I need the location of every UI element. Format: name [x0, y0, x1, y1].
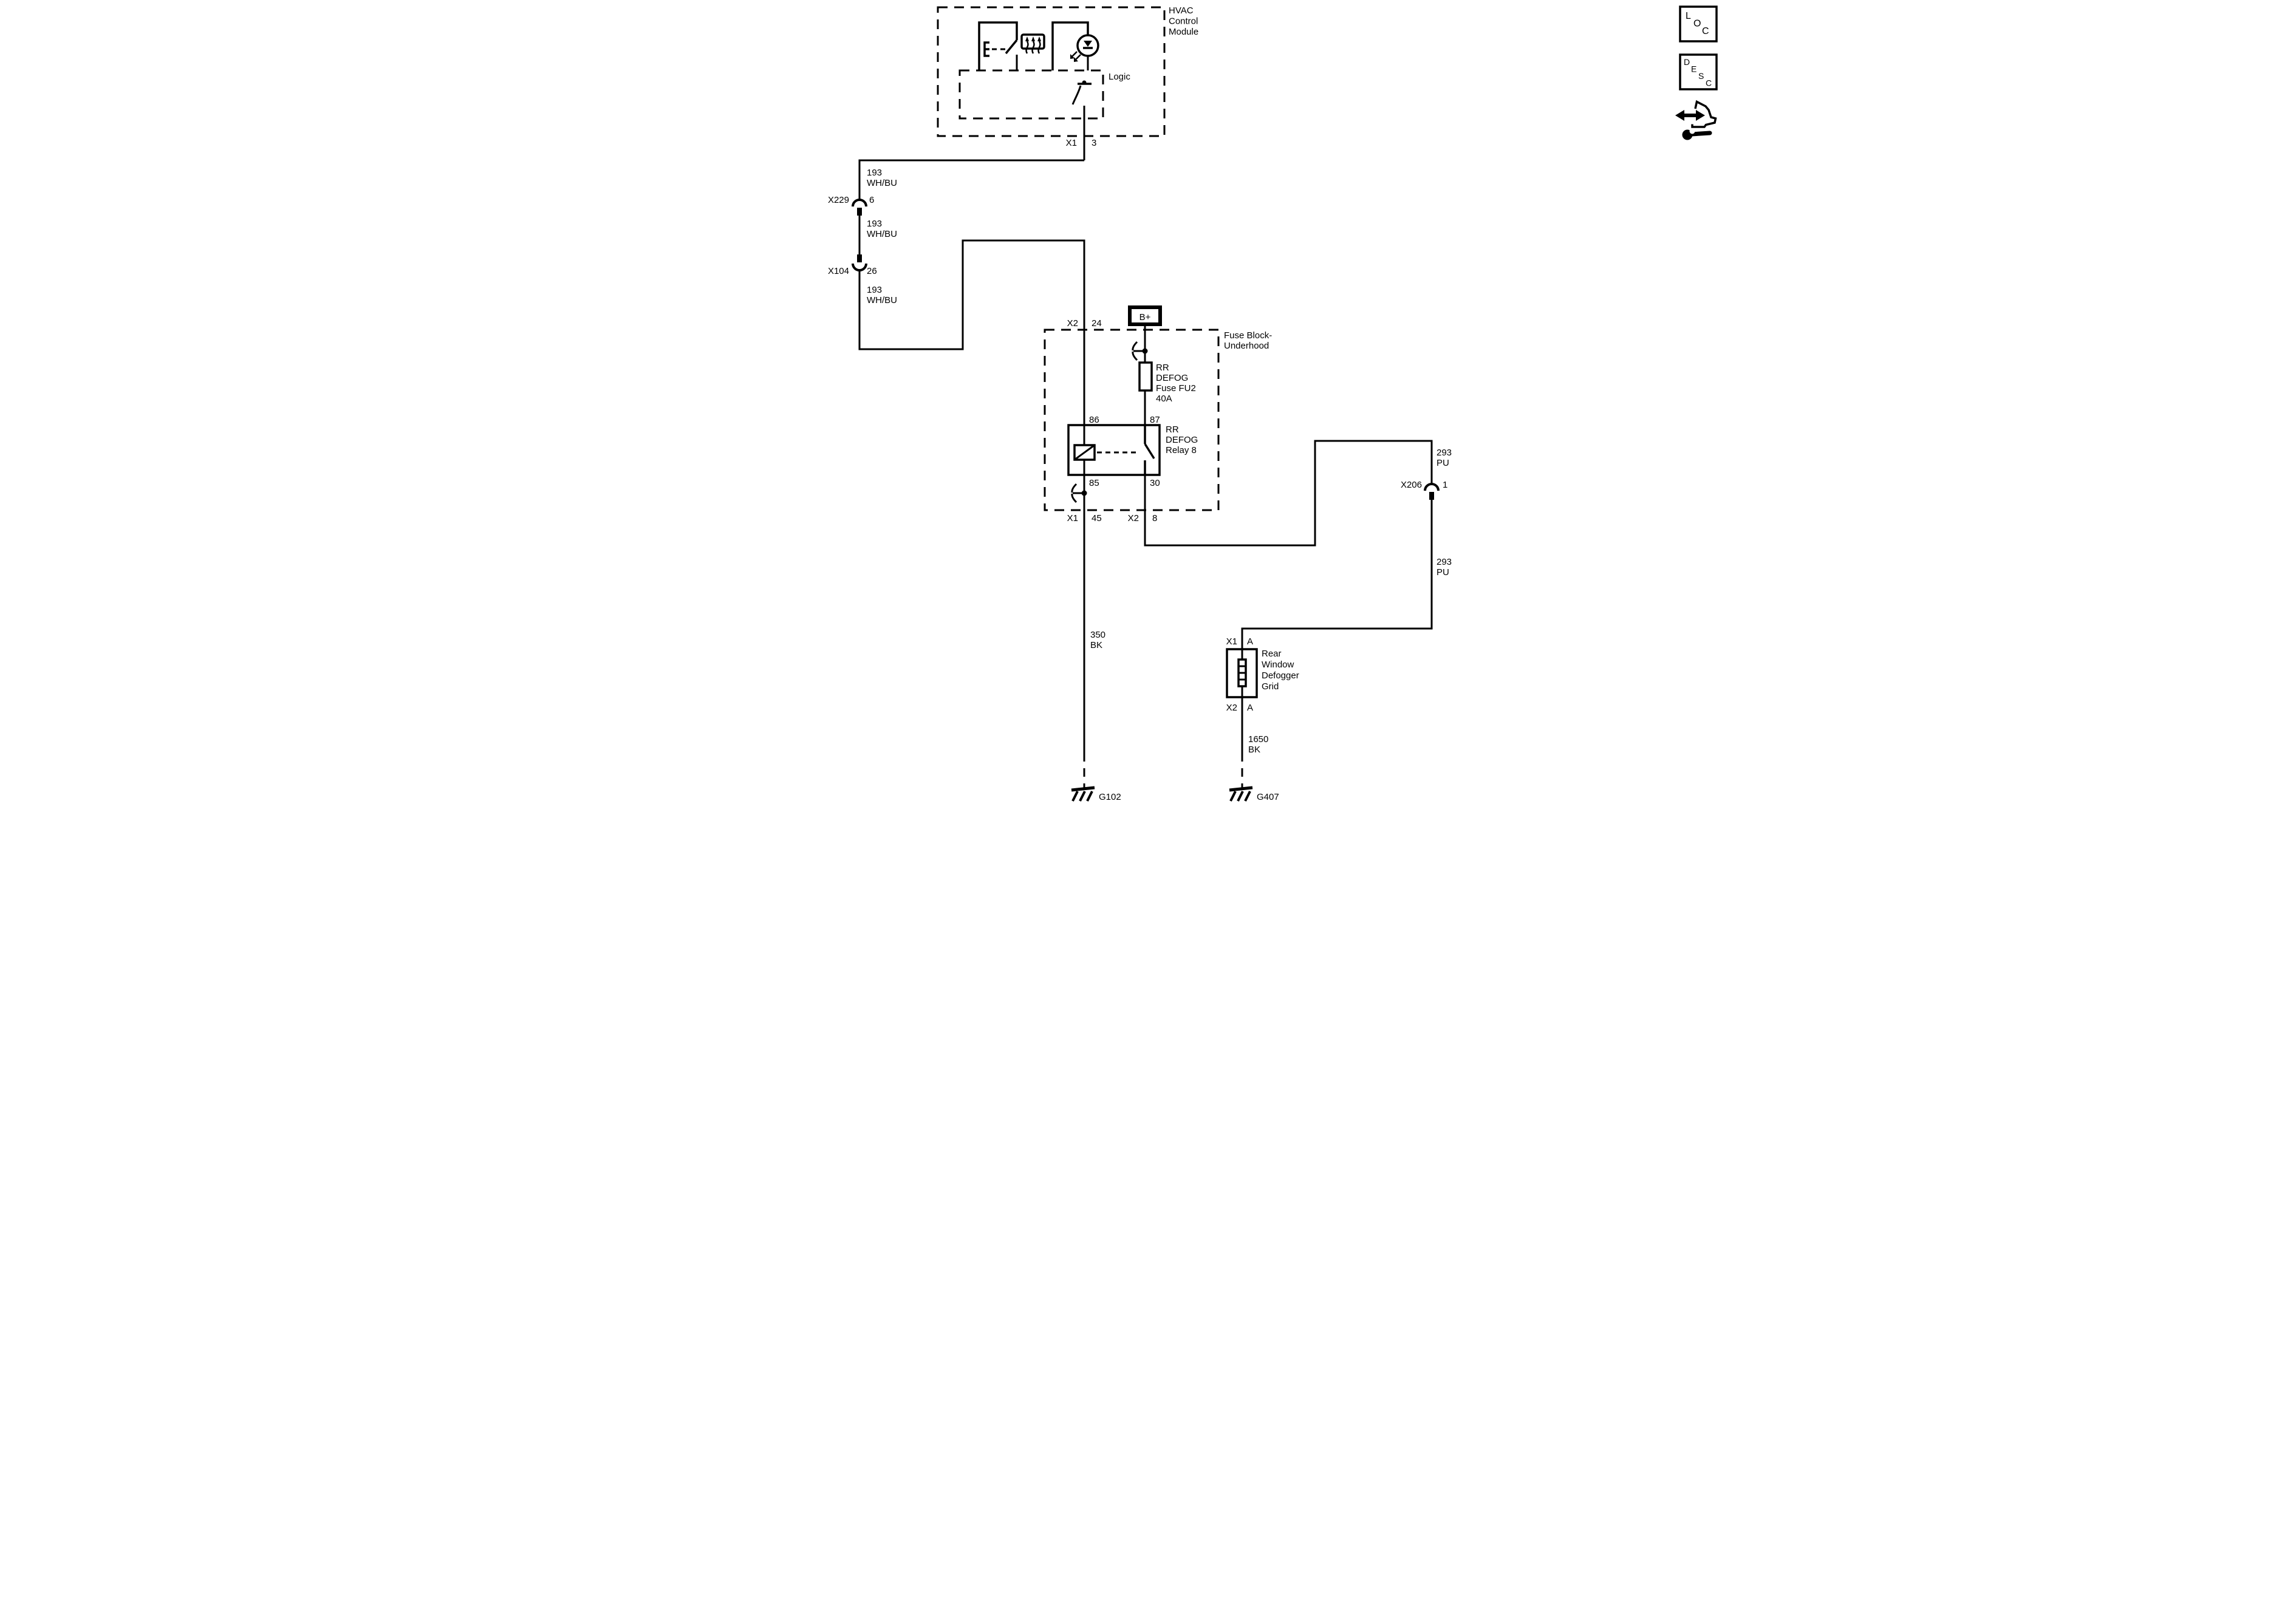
- svg-text:8: 8: [1152, 513, 1157, 523]
- wire-label-1650: 1650 BK: [1248, 734, 1268, 755]
- desc-letter: D: [1684, 57, 1690, 67]
- fuse-fu2-icon: [1139, 363, 1152, 390]
- hvac-control-module: HVAC Control Module: [938, 5, 1198, 160]
- svg-text:X2: X2: [1226, 703, 1237, 713]
- wire-label-193-3: 193 WH/BU: [867, 285, 897, 305]
- svg-text:WH/BU: WH/BU: [867, 295, 897, 305]
- svg-text:WH/BU: WH/BU: [867, 229, 897, 239]
- svg-text:Fuse FU2: Fuse FU2: [1156, 383, 1196, 394]
- connector-plug-icon: [857, 208, 862, 216]
- wire-label-193-1: 193 WH/BU: [867, 168, 897, 188]
- pin-label: X1: [1066, 138, 1077, 148]
- ground-symbol-icon: [1071, 788, 1095, 801]
- svg-text:293: 293: [1437, 448, 1452, 458]
- relay-terminal-label: 30: [1150, 478, 1160, 488]
- svg-text:193: 193: [867, 219, 882, 229]
- svg-text:DEFOG: DEFOG: [1166, 435, 1198, 445]
- defogger-grid-element-icon: [1239, 660, 1246, 686]
- loc-letter: O: [1693, 19, 1701, 29]
- svg-text:350: 350: [1090, 630, 1105, 640]
- svg-text:Window: Window: [1262, 660, 1294, 670]
- ground-symbol-icon: [1229, 788, 1252, 801]
- relay-label: RR DEFOG Relay 8: [1166, 424, 1198, 455]
- logic-box: Logic: [960, 70, 1130, 160]
- svg-text:24: 24: [1092, 318, 1102, 329]
- svg-text:RR: RR: [1166, 424, 1179, 435]
- svg-text:WH/BU: WH/BU: [867, 178, 897, 188]
- svg-text:A: A: [1247, 636, 1253, 647]
- connector-pin: 1: [1443, 480, 1447, 490]
- connector-name: X206: [1401, 480, 1422, 490]
- relay-terminal-label: 85: [1089, 478, 1099, 488]
- defogger-entry-pins: X1 A: [1226, 636, 1253, 647]
- loc-letter: L: [1686, 11, 1691, 21]
- connector-socket-icon: [1425, 484, 1438, 491]
- svg-text:40A: 40A: [1156, 394, 1172, 404]
- svg-text:BK: BK: [1090, 640, 1102, 650]
- ground-label-g407: G407: [1257, 792, 1279, 802]
- double-arrow-icon: [1675, 110, 1705, 121]
- svg-text:Relay 8: Relay 8: [1166, 445, 1197, 455]
- wire-label-293-2: 293 PU: [1437, 557, 1452, 578]
- hvac-exit-pins: X1 3: [1066, 138, 1097, 148]
- rear-window-defogger-grid: X1 A Rear Window Defogger Grid X2 A: [1226, 636, 1299, 713]
- svg-text:DEFOG: DEFOG: [1156, 373, 1188, 383]
- wire-293-segment: [1145, 441, 1432, 545]
- connector-socket-icon: [853, 264, 866, 270]
- connector-pin: 6: [869, 195, 874, 205]
- e-actuator-icon: [985, 43, 989, 56]
- driver-switch-icon: [1073, 81, 1092, 161]
- svg-text:X1: X1: [1067, 513, 1078, 523]
- hvac-module-label: Control: [1169, 16, 1198, 27]
- led-indicator-icon: [1053, 22, 1098, 70]
- connector-pin: 26: [867, 266, 877, 276]
- connector-x229: X229 6: [828, 195, 874, 216]
- svg-text:193: 193: [867, 168, 882, 178]
- battery-positive-terminal: B+: [1130, 307, 1160, 324]
- svg-text:X2: X2: [1067, 318, 1078, 329]
- desc-letter: C: [1706, 78, 1712, 88]
- pin-label: 3: [1092, 138, 1096, 148]
- ground-label-g102: G102: [1099, 792, 1121, 802]
- desc-button[interactable]: D E S C: [1680, 55, 1717, 89]
- svg-text:X2: X2: [1128, 513, 1139, 523]
- wiring-diagram-page: HVAC Control Module: [574, 0, 1722, 808]
- hvac-module-label: HVAC: [1169, 5, 1194, 16]
- logic-label: Logic: [1109, 72, 1130, 82]
- desc-letter: E: [1691, 64, 1696, 74]
- fuse-fu2-label: RR DEFOG Fuse FU2 40A: [1156, 363, 1196, 404]
- hvac-module-outline: [938, 7, 1164, 136]
- svg-text:X1: X1: [1226, 636, 1237, 647]
- defogger-label: Rear Window Defogger Grid: [1262, 649, 1299, 692]
- svg-text:PU: PU: [1437, 567, 1449, 578]
- fuse-block-underhood: Fuse Block- Underhood X2 24 B+ RR DEFOG …: [1045, 307, 1272, 523]
- loc-letter: C: [1702, 26, 1709, 36]
- relay-coil-icon: [1075, 445, 1095, 460]
- switch-icon: [979, 22, 1017, 70]
- battery-positive-label: B+: [1139, 312, 1151, 322]
- relay-terminal-label: 86: [1089, 415, 1099, 425]
- relay-switch-icon: [1145, 425, 1154, 475]
- defogger-exit-pins: X2 A: [1226, 703, 1253, 713]
- connector-plug-icon: [1429, 492, 1434, 500]
- rr-defog-relay: [1068, 425, 1160, 475]
- svg-text:Rear: Rear: [1262, 649, 1282, 659]
- connector-plug-icon: [857, 254, 862, 262]
- hvac-module-label: Module: [1169, 27, 1198, 37]
- svg-text:45: 45: [1092, 513, 1102, 523]
- defrost-heater-icon: [1022, 35, 1044, 53]
- fuse-block-exit-pins: X1 45 X2 8: [1067, 513, 1158, 523]
- wire-193-segment: [859, 240, 1084, 445]
- connector-name: X229: [828, 195, 849, 205]
- connector-name: X104: [828, 266, 849, 276]
- led-emission-arrows-icon: [1070, 52, 1081, 62]
- loc-button[interactable]: L O C: [1680, 7, 1717, 41]
- wire-label-350: 350 BK: [1090, 630, 1105, 650]
- connector-socket-icon: [853, 200, 866, 206]
- fuse-block-label: Underhood: [1224, 341, 1269, 351]
- connector-x104: X104 26: [828, 254, 877, 276]
- svg-text:293: 293: [1437, 557, 1452, 567]
- connector-x206: X206 1: [1401, 480, 1447, 500]
- wire-label-193-2: 193 WH/BU: [867, 219, 897, 239]
- svg-text:PU: PU: [1437, 458, 1449, 468]
- svg-text:193: 193: [867, 285, 882, 295]
- wire-label-293-1: 293 PU: [1437, 448, 1452, 468]
- svg-text:BK: BK: [1248, 745, 1260, 755]
- relay-terminal-label: 87: [1150, 415, 1160, 425]
- fuse-block-label: Fuse Block-: [1224, 330, 1272, 341]
- wire-293-segment: [1242, 500, 1432, 649]
- fuse-block-outline: [1045, 330, 1218, 510]
- wrench-icon: [1683, 129, 1710, 140]
- desc-letter: S: [1698, 71, 1704, 81]
- vehicle-diagnostics-button[interactable]: [1675, 102, 1716, 140]
- svg-text:Grid: Grid: [1262, 681, 1279, 692]
- svg-text:1650: 1650: [1248, 734, 1268, 745]
- svg-text:RR: RR: [1156, 363, 1169, 373]
- svg-text:Defogger: Defogger: [1262, 670, 1299, 681]
- svg-text:A: A: [1247, 703, 1253, 713]
